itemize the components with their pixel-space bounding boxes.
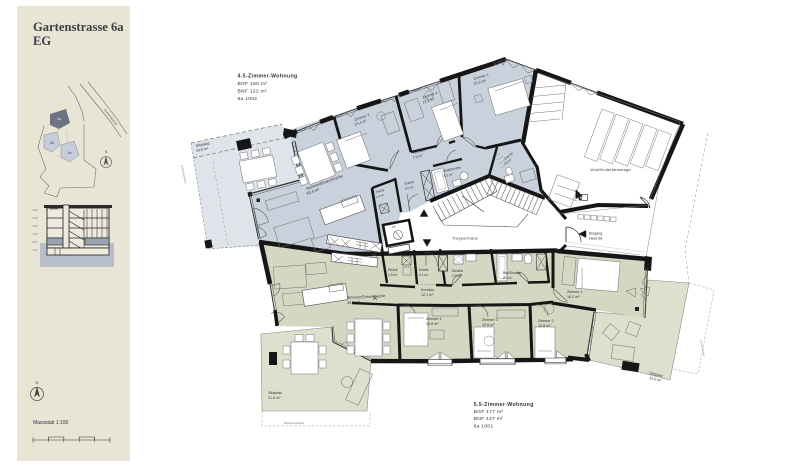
svg-text:Korridor: Korridor (421, 288, 435, 292)
svg-text:31.8 m²: 31.8 m² (268, 396, 281, 400)
svg-text:6a 1001: 6a 1001 (474, 423, 494, 429)
svg-text:BNF 137 m²: BNF 137 m² (474, 416, 503, 422)
svg-text:8.4 m²: 8.4 m² (503, 276, 513, 280)
svg-text:Treppenhaus: Treppenhaus (452, 236, 478, 241)
svg-text:6b: 6b (50, 141, 54, 145)
svg-text:BNF 122 m²: BNF 122 m² (238, 89, 267, 95)
svg-text:BGF 160 m²: BGF 160 m² (238, 81, 268, 87)
svg-text:12.1 m²: 12.1 m² (421, 293, 434, 297)
svg-text:Zimmer 1: Zimmer 1 (567, 290, 583, 294)
svg-text:Dusche: Dusche (452, 269, 463, 273)
svg-text:Brückenmarkise: Brückenmarkise (284, 421, 304, 425)
svg-text:Sitzplatz: Sitzplatz (268, 391, 282, 395)
svg-text:15.6 m²: 15.6 m² (426, 322, 439, 326)
svg-text:Zimmer 2: Zimmer 2 (538, 319, 554, 323)
svg-text:12.8 m²: 12.8 m² (538, 324, 551, 328)
svg-text:2.9 m²: 2.9 m² (388, 273, 398, 277)
svg-text:+3.20: +3.20 (32, 226, 39, 228)
svg-text:EG: EG (33, 34, 51, 48)
svg-text:4.1 m²: 4.1 m² (419, 273, 429, 277)
svg-text:5.5-Zimmer-Wohnung: 5.5-Zimmer-Wohnung (474, 402, 534, 408)
svg-text:Reduit: Reduit (388, 268, 398, 272)
svg-text:44.7 m²: 44.7 m² (347, 299, 361, 305)
svg-text:18.2 m²: 18.2 m² (567, 295, 580, 299)
svg-text:+1.50: +1.50 (32, 234, 39, 236)
svg-text:N: N (36, 380, 39, 385)
svg-text:Haus 6a: Haus 6a (589, 237, 602, 241)
svg-text:Sichtschutzwand: Sichtschutzwand (180, 165, 187, 185)
svg-text:Gartenstrasse 6a: Gartenstrasse 6a (33, 20, 124, 34)
svg-text:-1.40: -1.40 (32, 250, 38, 252)
svg-text:Zimmer 3: Zimmer 3 (482, 318, 498, 322)
svg-text:4.5-Zimmer-Wohnung: 4.5-Zimmer-Wohnung (238, 74, 298, 80)
svg-text:Eingang: Eingang (589, 232, 602, 236)
svg-text:4.9 m²: 4.9 m² (452, 274, 462, 278)
svg-text:6a 1002: 6a 1002 (238, 96, 258, 102)
svg-text:Zimmer 4: Zimmer 4 (426, 317, 442, 321)
svg-text:0.00: 0.00 (32, 242, 37, 244)
svg-text:Massstab 1:100: Massstab 1:100 (33, 420, 69, 426)
svg-text:+6.40: +6.40 (32, 218, 39, 220)
svg-text:6c: 6c (68, 151, 72, 155)
svg-text:12.6 m²: 12.6 m² (482, 323, 495, 327)
svg-text:Brückenmarkise: Brückenmarkise (699, 340, 706, 358)
svg-text:BGF 177 m²: BGF 177 m² (474, 409, 504, 415)
svg-text:Entrée: Entrée (419, 268, 429, 272)
svg-text:Bad/Dusche: Bad/Dusche (503, 271, 521, 275)
svg-text:+9.60: +9.60 (32, 210, 39, 212)
svg-text:6a: 6a (57, 117, 61, 121)
svg-text:Velo/Kinderfahrzeuge: Velo/Kinderfahrzeuge (590, 167, 631, 172)
